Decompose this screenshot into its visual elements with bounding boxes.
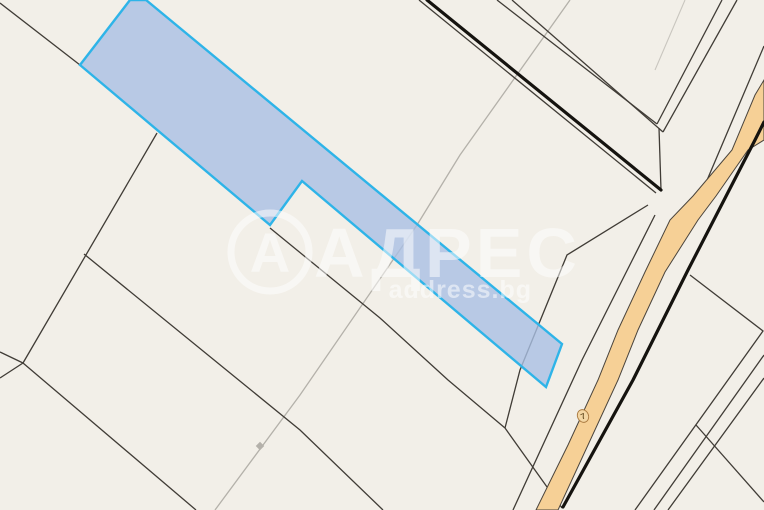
watermark-domain: address.bg	[389, 276, 532, 304]
watermark: А АДРЕС address.bg	[231, 213, 581, 304]
cadastral-map[interactable]: 7 А АДРЕС address.bg	[0, 0, 764, 510]
watermark-logo-letter: А	[250, 221, 290, 284]
map-canvas[interactable]: 7 А АДРЕС address.bg	[0, 0, 764, 510]
